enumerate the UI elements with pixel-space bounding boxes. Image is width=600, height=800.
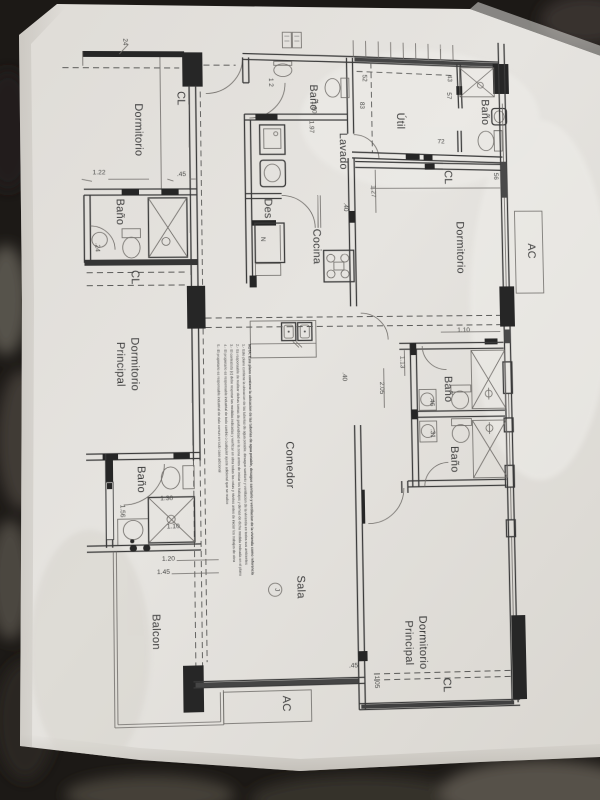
- svg-text:Dormitorio: Dormitorio: [454, 221, 467, 274]
- svg-text:1.10: 1.10: [457, 327, 470, 334]
- svg-text:1.20: 1.20: [162, 556, 175, 563]
- svg-text:Principal: Principal: [402, 620, 415, 665]
- svg-text:Útil: Útil: [394, 113, 407, 130]
- svg-text:AC: AC: [280, 695, 292, 711]
- svg-text:Principal: Principal: [114, 342, 127, 387]
- svg-text:1.05: 1.05: [373, 676, 380, 689]
- svg-text:CL: CL: [174, 91, 186, 105]
- svg-text:57: 57: [445, 92, 452, 99]
- svg-text:72: 72: [437, 139, 445, 146]
- svg-text:Baño: Baño: [448, 446, 460, 473]
- svg-text:4.- El propietario es responsa: 4.- El propietario es responsable indust…: [223, 344, 229, 504]
- svg-text:Dormitorio: Dormitorio: [416, 616, 429, 670]
- svg-text:Comedor: Comedor: [283, 441, 296, 488]
- svg-text:N: N: [259, 237, 266, 242]
- svg-text:Cocina: Cocina: [310, 229, 323, 265]
- svg-text:52: 52: [361, 75, 368, 82]
- svg-text:83: 83: [358, 102, 365, 109]
- svg-text:Sala: Sala: [294, 575, 306, 599]
- svg-text:J: J: [273, 588, 280, 591]
- svg-text:24: 24: [121, 38, 128, 45]
- svg-text:1.22: 1.22: [93, 169, 106, 176]
- svg-text:1 2: 1 2: [267, 78, 274, 87]
- svg-text:1.56: 1.56: [119, 505, 126, 518]
- svg-text:5.- El propietario es responsa: 5.- El propietario es responsable indust…: [216, 344, 222, 472]
- svg-text:AC: AC: [525, 243, 537, 259]
- svg-text:Dormitorio: Dormitorio: [128, 337, 141, 391]
- svg-text:CL: CL: [441, 678, 453, 693]
- svg-text:Lavado: Lavado: [337, 133, 350, 170]
- svg-text:Baño: Baño: [135, 466, 148, 493]
- svg-text:56: 56: [492, 173, 499, 180]
- svg-text:Des: Des: [262, 198, 274, 218]
- svg-text:Baño: Baño: [442, 376, 454, 403]
- svg-text:3.- El contratista (c) debe re: 3.- El contratista (c) debe respetar las…: [229, 344, 236, 562]
- svg-text:.46: .46: [428, 397, 435, 406]
- svg-text:.24: .24: [94, 243, 101, 252]
- svg-text:CL: CL: [129, 270, 141, 285]
- svg-text:.40: .40: [342, 203, 349, 212]
- svg-text:.31: .31: [429, 429, 436, 438]
- svg-text:Baño: Baño: [114, 199, 126, 226]
- svg-text:.45: .45: [349, 662, 359, 669]
- svg-text:1.10: 1.10: [167, 523, 180, 530]
- svg-text:Dormitorio: Dormitorio: [132, 103, 145, 156]
- svg-text:.45: .45: [177, 171, 187, 178]
- svg-text:1.30: 1.30: [160, 495, 173, 502]
- svg-text:1.97: 1.97: [308, 121, 315, 134]
- svg-text:CL: CL: [442, 170, 454, 184]
- svg-text:Baño: Baño: [479, 99, 491, 125]
- svg-text:.40: .40: [341, 372, 348, 381]
- svg-text:1.80: 1.80: [310, 101, 317, 114]
- svg-text:1.45: 1.45: [157, 569, 170, 576]
- svg-text:43: 43: [446, 75, 453, 82]
- svg-text:Balcon: Balcon: [150, 614, 163, 650]
